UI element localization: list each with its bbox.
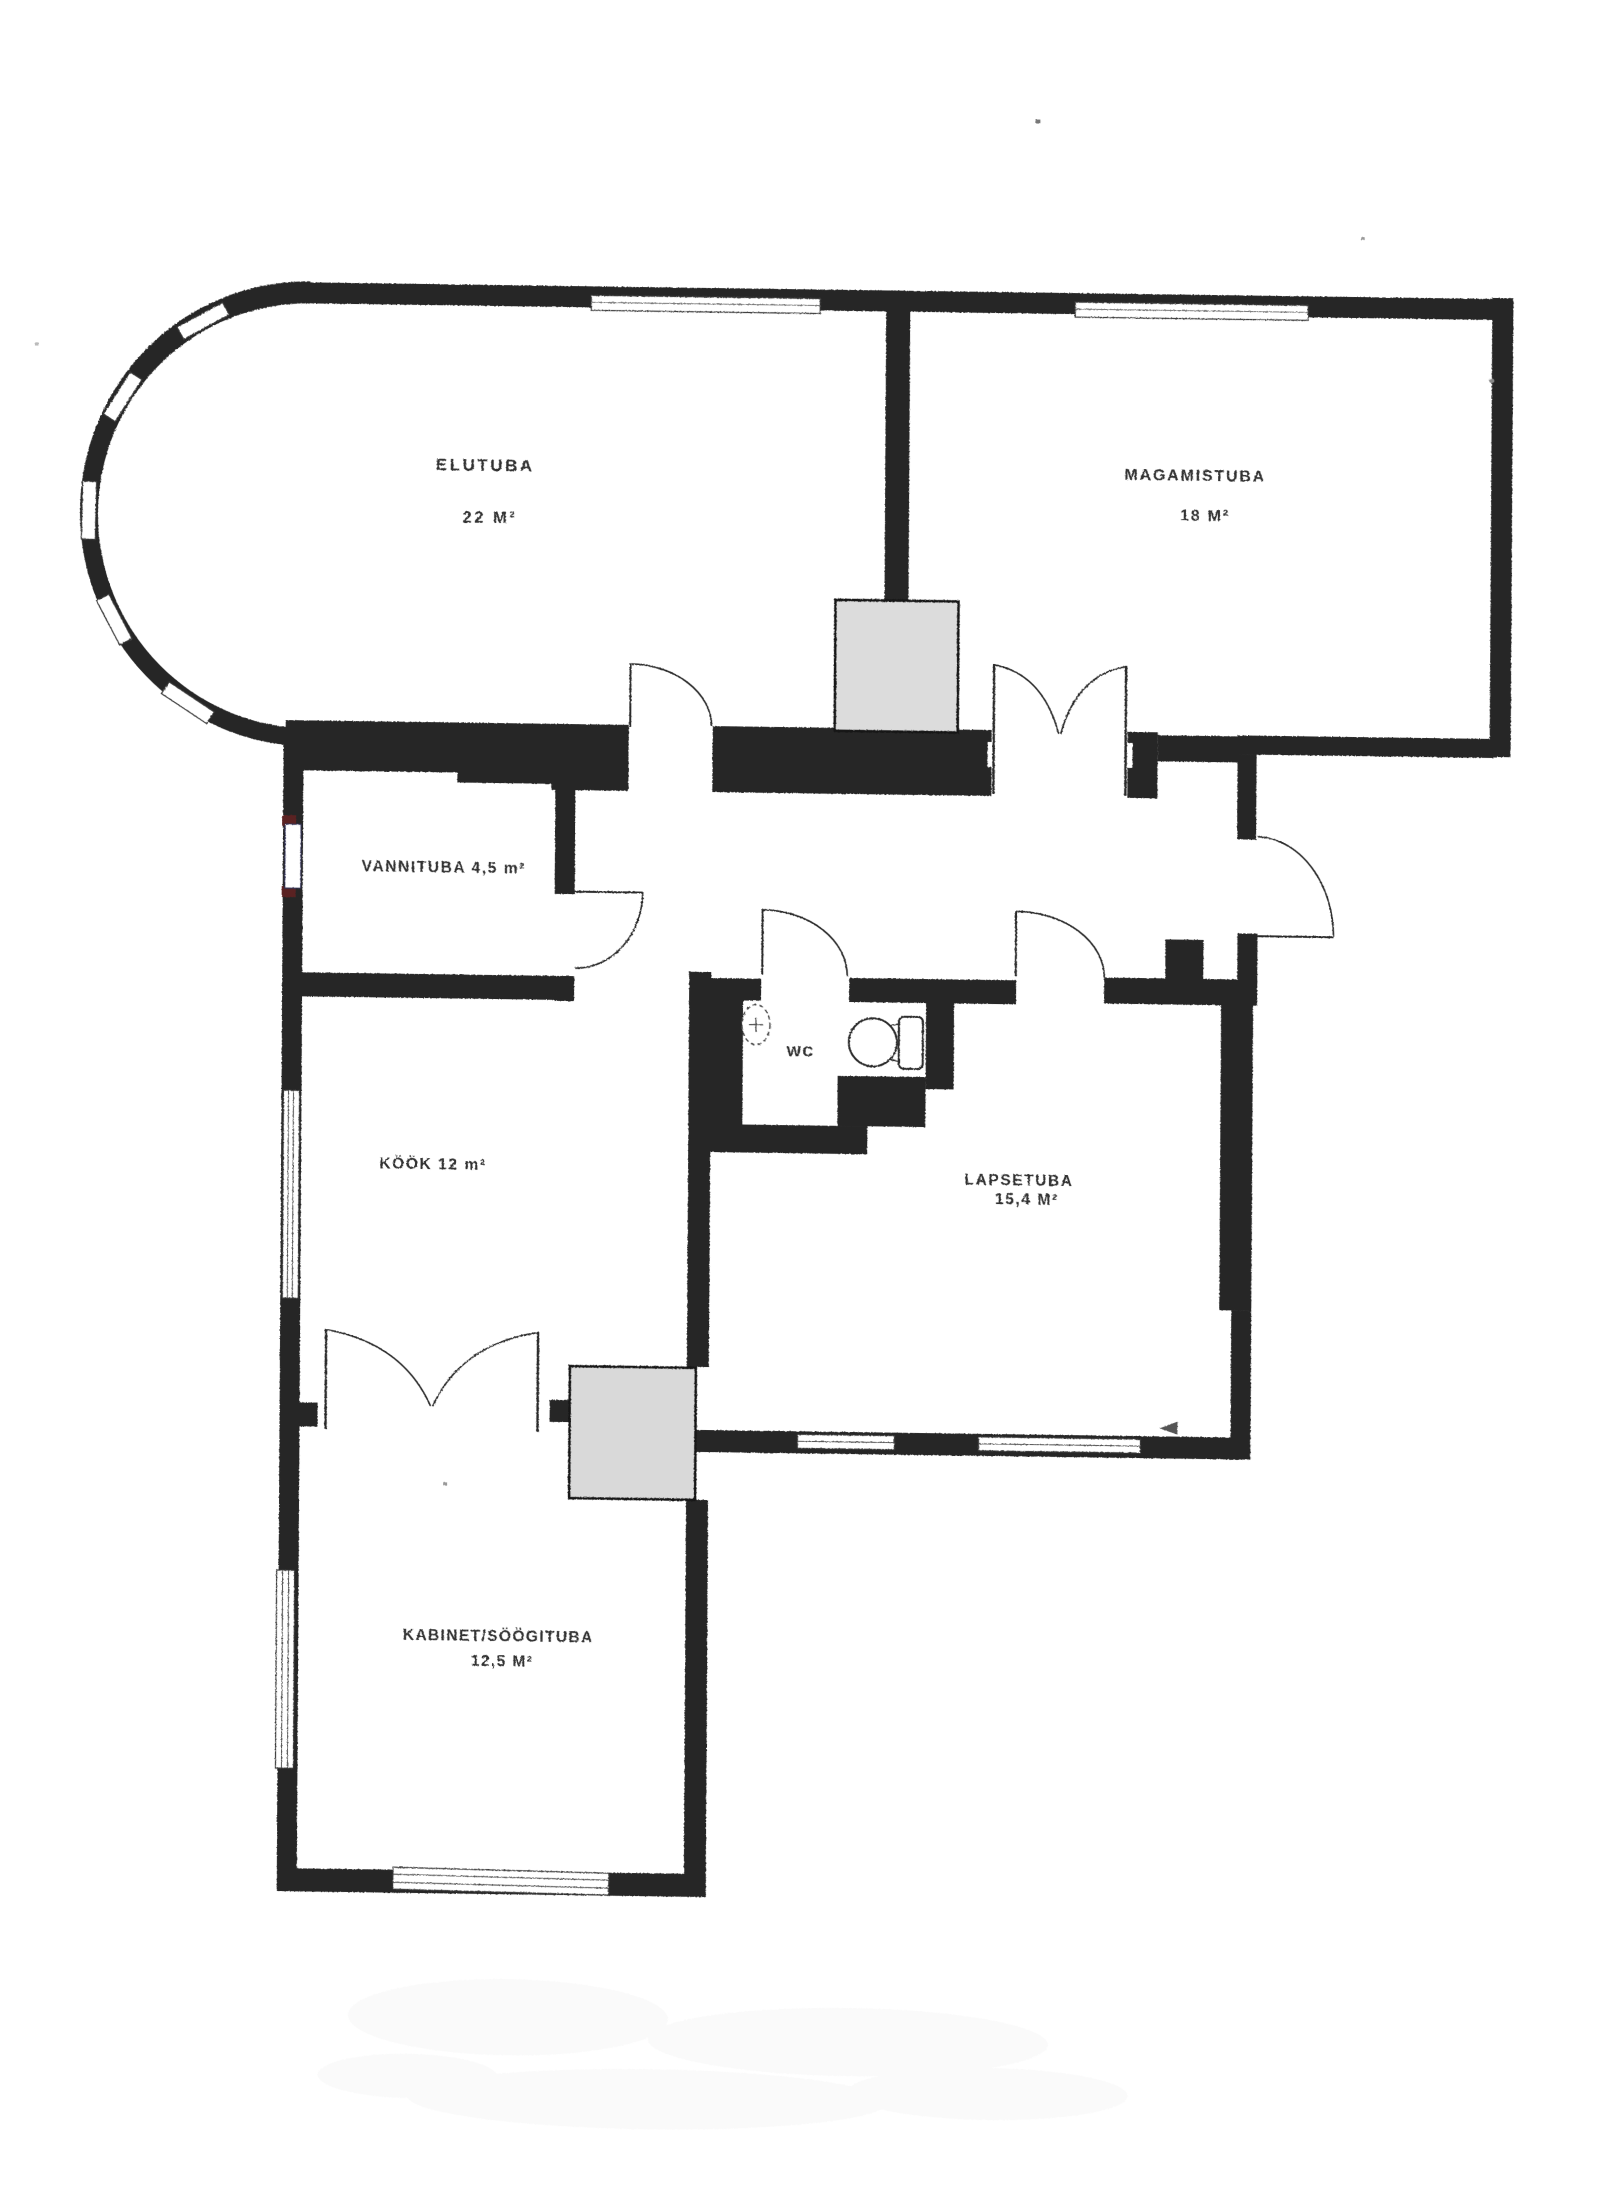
- svg-text:LAPSETUBA: LAPSETUBA: [964, 1172, 1073, 1191]
- svg-text:15,4 M²: 15,4 M²: [995, 1191, 1059, 1209]
- svg-text:12,5 M²: 12,5 M²: [471, 1653, 533, 1671]
- svg-text:KABINET/SÖÖGITUBA: KABINET/SÖÖGITUBA: [403, 1627, 594, 1647]
- svg-text:22 M²: 22 M²: [463, 509, 518, 528]
- svg-text:WC: WC: [787, 1043, 815, 1060]
- svg-text:ELUTUBA: ELUTUBA: [436, 455, 535, 475]
- svg-text:KÖÖK 12 m²: KÖÖK 12 m²: [379, 1155, 486, 1174]
- svg-text:MAGAMISTUBA: MAGAMISTUBA: [1124, 467, 1266, 486]
- svg-text:VANNITUBA 4,5 m²: VANNITUBA 4,5 m²: [362, 858, 526, 877]
- svg-text:18 M²: 18 M²: [1180, 508, 1230, 526]
